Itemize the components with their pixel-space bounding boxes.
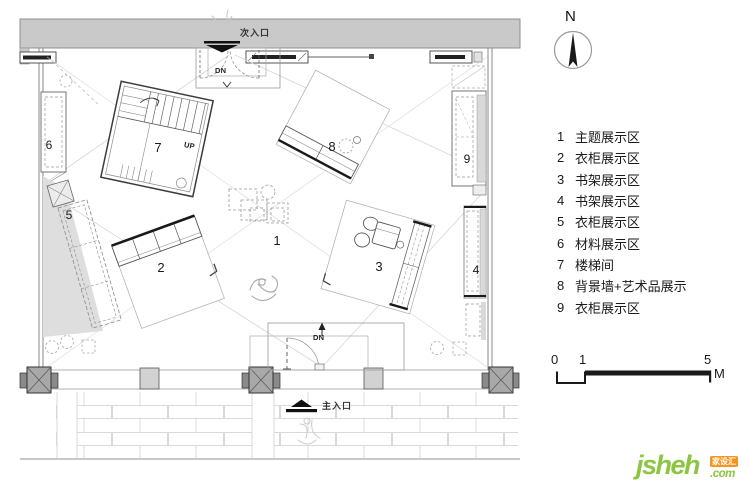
- legend-item-3: 3书架展示区: [557, 169, 687, 190]
- main-entrance-label: 主入口: [322, 399, 352, 412]
- dn-label-bottom: DN: [313, 333, 324, 342]
- legend-item-1: 1主题展示区: [557, 126, 687, 147]
- area-3-bookshelf-display: [321, 200, 435, 314]
- logo-badge: 家设汇: [710, 456, 738, 467]
- area-marker-8: 8: [325, 139, 339, 154]
- scale-tick-5: 5: [704, 352, 711, 367]
- compass-needle-icon: [569, 33, 578, 68]
- area-marker-7: 7: [151, 140, 165, 155]
- legend-item-number: 2: [557, 150, 575, 165]
- area-marker-1: 1: [270, 233, 284, 248]
- secondary-entrance: [196, 41, 280, 88]
- figure-sketch-center: [250, 276, 278, 301]
- area-marker-9: 9: [460, 152, 474, 166]
- legend-item-number: 9: [557, 300, 575, 315]
- scale-unit: M: [714, 366, 725, 381]
- legend-item-2: 2衣柜展示区: [557, 147, 687, 168]
- legend-item-number: 3: [557, 172, 575, 187]
- area-9-wardrobe-display: [452, 66, 486, 195]
- paving-bricks: [20, 392, 520, 459]
- logo-tld-text[interactable]: .com: [710, 468, 735, 480]
- area-1-theme-display: [229, 185, 288, 223]
- legend-item-number: 4: [557, 193, 575, 208]
- floor-plan-page: { "plan": { "entrances": { "secondary": …: [0, 0, 750, 489]
- legend-item-7: 7楼梯间: [557, 254, 687, 275]
- area-8-background-wall: [276, 70, 390, 184]
- legend: 1主题展示区 2衣柜展示区 3书架展示区 4书架展示区 5衣柜展示区 6材料展示…: [557, 126, 687, 318]
- scale-tick-1: 1: [579, 352, 586, 367]
- legend-item-label: 楼梯间: [575, 255, 614, 274]
- secondary-entrance-label: 次入口: [240, 26, 270, 39]
- scale-tick-0: 0: [551, 352, 558, 367]
- legend-item-number: 8: [557, 278, 575, 293]
- legend-item-5: 5衣柜展示区: [557, 211, 687, 232]
- dn-label-top: DN: [215, 66, 226, 75]
- north-label: N: [565, 8, 576, 25]
- legend-item-number: 7: [557, 257, 575, 272]
- legend-item-number: 5: [557, 214, 575, 229]
- area-2-wardrobe-display: [112, 215, 227, 328]
- legend-item-label: 材料展示区: [575, 234, 640, 253]
- logo-brand-text[interactable]: jsheh: [636, 450, 699, 481]
- up-label: UP: [183, 140, 195, 151]
- legend-item-label: 衣柜展示区: [575, 148, 640, 167]
- legend-item-number: 1: [557, 129, 575, 144]
- area-8-art-dot: [354, 137, 361, 144]
- legend-item-8: 8背景墙+艺术品展示: [557, 275, 687, 296]
- legend-item-label: 衣柜展示区: [575, 298, 640, 317]
- scale-bar: [557, 371, 711, 384]
- legend-item-9: 9衣柜展示区: [557, 296, 687, 317]
- legend-item-label: 衣柜展示区: [575, 212, 640, 231]
- legend-item-label: 书架展示区: [575, 191, 640, 210]
- legend-item-number: 6: [557, 236, 575, 251]
- window-symbols: [20, 51, 482, 63]
- area-marker-2: 2: [154, 260, 168, 275]
- area-7-stairwell: [101, 81, 213, 196]
- area-marker-3: 3: [372, 259, 386, 274]
- area-marker-4: 4: [469, 263, 483, 277]
- legend-item-4: 4书架展示区: [557, 190, 687, 211]
- compass: [555, 32, 592, 69]
- legend-item-6: 6材料展示区: [557, 232, 687, 253]
- site-logo[interactable]: jsheh 家设汇 .com: [636, 454, 749, 488]
- legend-item-label: 背景墙+艺术品展示: [575, 276, 687, 295]
- legend-item-label: 书架展示区: [575, 170, 640, 189]
- area-marker-6: 6: [42, 138, 56, 152]
- loose-furniture: [46, 75, 467, 355]
- area-marker-5: 5: [62, 208, 76, 222]
- legend-item-label: 主题展示区: [575, 127, 640, 146]
